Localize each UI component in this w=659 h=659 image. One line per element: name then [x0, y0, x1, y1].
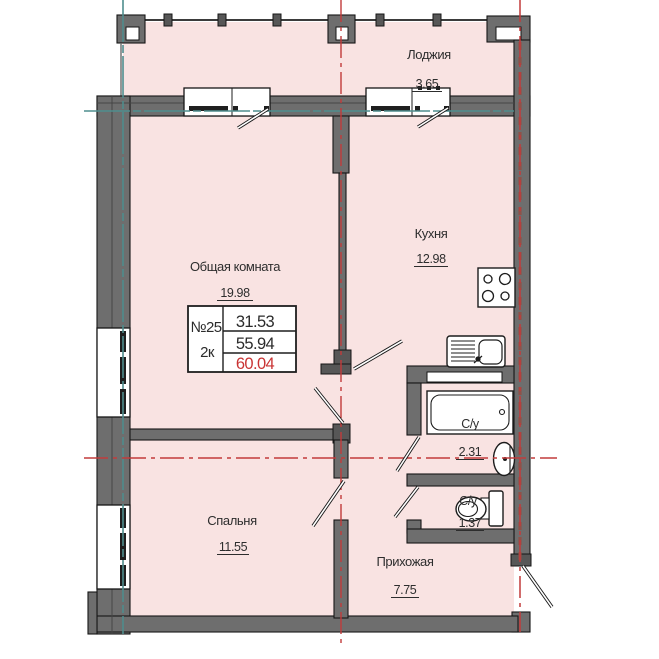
- railing-post: [376, 14, 384, 26]
- kitchen-sink: [447, 336, 505, 367]
- kitchen-balcony-window: [366, 88, 450, 116]
- living-door-mark: [233, 106, 238, 111]
- railing-post: [273, 14, 281, 26]
- label-bedroom-name: Спальня: [207, 513, 257, 528]
- wall-left-footing: [88, 592, 97, 634]
- wall-bath-left-upper: [407, 383, 421, 435]
- label-wc-area: 1.37: [459, 516, 482, 530]
- railing-post: [218, 14, 226, 26]
- label-bathroom-name: С/у: [461, 417, 480, 431]
- label-bedroom-area: 11.55: [219, 540, 248, 554]
- wash-basin: [494, 443, 515, 476]
- label-loggia-area: 3.65: [416, 77, 439, 91]
- label-living-name: Общая комната: [190, 259, 281, 274]
- label-wc-name: С/у: [459, 494, 478, 508]
- wall-top: [97, 96, 530, 116]
- bath-wall-duct: [427, 372, 502, 382]
- unit-number: №25: [191, 319, 222, 336]
- label-kitchen-area: 12.98: [416, 252, 446, 266]
- kitchen-door-mark: [415, 106, 420, 111]
- kitchen-window-glazing: [371, 106, 410, 111]
- railing-post: [164, 14, 172, 26]
- label-living-area: 19.98: [220, 286, 250, 300]
- label-hallway-name: Прихожая: [376, 554, 433, 569]
- room-loggia-area: [123, 22, 514, 96]
- label-bathroom-area: 2.31: [459, 445, 482, 459]
- wall-kitchen-living-cap: [334, 350, 351, 365]
- loggia-corner-inset: [496, 27, 521, 40]
- label-hallway-area: 7.75: [394, 583, 417, 597]
- floor-plan-page: №25 2к 31.53 55.94 60.04 Лоджия 3.65 Кух…: [0, 0, 659, 659]
- wall-right: [514, 40, 530, 562]
- railing-post: [433, 14, 441, 26]
- unit-info-table: №25 2к 31.53 55.94 60.04: [188, 306, 296, 373]
- unit-area-total: 60.04: [236, 355, 275, 373]
- unit-area-apartment: 55.94: [236, 335, 275, 353]
- living-door-header: [321, 364, 351, 374]
- floor-plan-drawing: №25 2к 31.53 55.94 60.04 Лоджия 3.65 Кух…: [0, 0, 659, 659]
- wall-kitchen-living: [339, 173, 346, 353]
- unit-type: 2к: [200, 344, 215, 361]
- wall-living-bedroom: [130, 429, 348, 440]
- loggia-column-inset: [126, 27, 139, 40]
- living-balcony-window: [184, 88, 270, 116]
- stove: [478, 268, 515, 307]
- label-loggia-name: Лоджия: [407, 47, 451, 62]
- wall-bath-divider: [407, 474, 514, 486]
- wall-bottom: [97, 616, 518, 632]
- wall-bath-bottom: [407, 529, 514, 543]
- label-kitchen-name: Кухня: [415, 226, 448, 241]
- unit-area-living: 31.53: [236, 313, 275, 331]
- living-window-glazing: [189, 106, 228, 111]
- loggia-column-inset: [336, 27, 348, 40]
